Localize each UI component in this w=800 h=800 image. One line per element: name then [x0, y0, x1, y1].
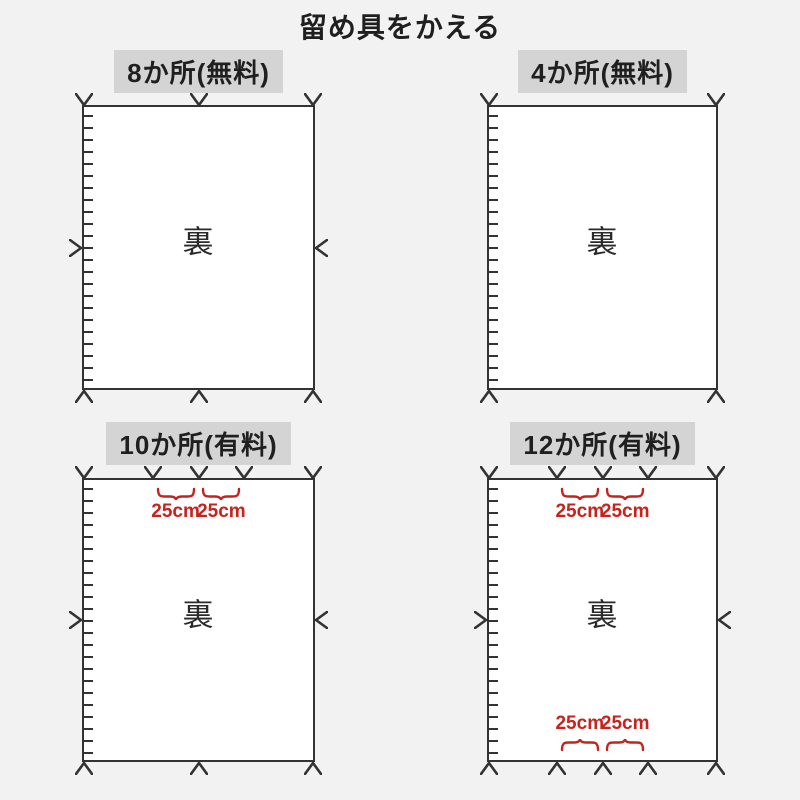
fastener-marker-top-icon [144, 466, 162, 479]
measure-label: 25cm [555, 713, 604, 735]
fabric-back-rect: 裏 [82, 105, 315, 390]
panel-10-places: 10か所(有料) 裏 25cm25cm [52, 422, 345, 794]
fastener-marker-bottom-icon [75, 390, 93, 403]
fastener-marker-top-icon [707, 93, 725, 106]
measure-brace-icon [605, 739, 645, 752]
fastener-marker-top-icon [304, 466, 322, 479]
fastener-marker-bottom-icon [304, 390, 322, 403]
fastener-marker-bottom-icon [480, 390, 498, 403]
measure-brace-icon [156, 487, 196, 500]
fastener-marker-right-icon [718, 611, 731, 629]
fastener-marker-top-icon [548, 466, 566, 479]
fastener-markers [84, 107, 313, 388]
measure-label: 25cm [601, 713, 650, 735]
panel-12-places: 12か所(有料) 裏 25cm25cm25cm25cm [457, 422, 748, 794]
measure-brace-icon [560, 487, 600, 500]
fastener-markers [489, 107, 716, 388]
fastener-markers: 25cm25cm25cm25cm [489, 480, 716, 760]
fastener-marker-top-icon [190, 93, 208, 106]
panel-label-row: 8か所(無料) [52, 50, 345, 93]
panel-label: 4か所(無料) [518, 50, 687, 93]
fastener-marker-bottom-icon [707, 762, 725, 775]
fastener-marker-top-icon [480, 93, 498, 106]
measure-label: 25cm [601, 501, 650, 523]
fastener-marker-left-icon [474, 611, 487, 629]
fastener-marker-bottom-icon [190, 390, 208, 403]
fastener-marker-left-icon [69, 239, 82, 257]
fastener-marker-bottom-icon [639, 762, 657, 775]
measure-label: 25cm [197, 501, 246, 523]
panel-label: 12か所(有料) [510, 422, 694, 465]
fabric-back-rect: 裏 25cm25cm25cm25cm [487, 478, 718, 762]
fastener-marker-bottom-icon [304, 762, 322, 775]
fastener-markers: 25cm25cm [84, 480, 313, 760]
fabric-back-rect: 裏 25cm25cm [82, 478, 315, 762]
panel-8-places: 8か所(無料) 裏 [52, 50, 345, 422]
measure-brace-icon [605, 487, 645, 500]
fastener-marker-top-icon [707, 466, 725, 479]
fastener-marker-right-icon [315, 611, 328, 629]
fastener-marker-right-icon [315, 239, 328, 257]
fastener-marker-bottom-icon [190, 762, 208, 775]
fastener-marker-top-icon [75, 466, 93, 479]
panel-label-row: 4か所(無料) [457, 50, 748, 93]
measure-label: 25cm [555, 501, 604, 523]
fabric-back-rect: 裏 [487, 105, 718, 390]
fastener-marker-top-icon [304, 93, 322, 106]
fastener-marker-bottom-icon [75, 762, 93, 775]
fastener-marker-top-icon [190, 466, 208, 479]
page-title: 留め具をかえる [0, 6, 800, 46]
fastener-marker-bottom-icon [707, 390, 725, 403]
panel-label: 10か所(有料) [106, 422, 290, 465]
fastener-marker-top-icon [480, 466, 498, 479]
fastener-marker-bottom-icon [548, 762, 566, 775]
measure-brace-icon [201, 487, 241, 500]
fastener-marker-bottom-icon [594, 762, 612, 775]
fastener-marker-top-icon [594, 466, 612, 479]
panel-label-row: 12か所(有料) [457, 422, 748, 465]
fastener-marker-top-icon [75, 93, 93, 106]
panel-label: 8か所(無料) [114, 50, 283, 93]
fastener-marker-top-icon [235, 466, 253, 479]
fastener-marker-bottom-icon [480, 762, 498, 775]
measure-label: 25cm [151, 501, 200, 523]
panel-label-row: 10か所(有料) [52, 422, 345, 465]
measure-brace-icon [560, 739, 600, 752]
fastener-marker-left-icon [69, 611, 82, 629]
fastener-marker-top-icon [639, 466, 657, 479]
panel-4-places: 4か所(無料) 裏 [457, 50, 748, 422]
